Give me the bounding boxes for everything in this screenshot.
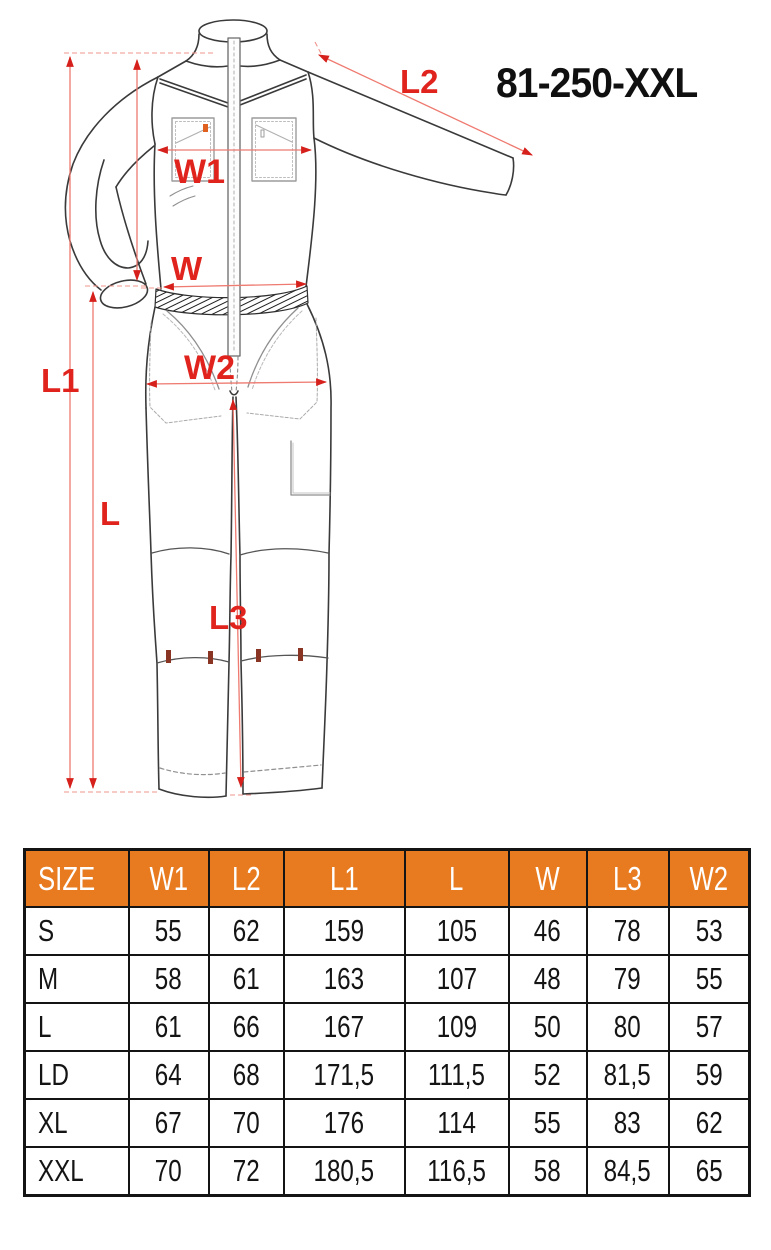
value-cell: 52 [509,1051,587,1099]
table-row: XL6770176114558362 [25,1099,750,1147]
value-cell: 70 [209,1099,284,1147]
table-row: M5861163107487955 [25,955,750,1003]
value-cell: 61 [129,1003,209,1051]
column-header-l: L [405,850,509,908]
cell-text: 68 [233,1057,260,1093]
cell-text: 55 [534,1105,561,1141]
cell-text: 81,5 [604,1057,651,1093]
value-cell: 176 [284,1099,405,1147]
cell-text: XL [38,1105,68,1141]
value-cell: 48 [509,955,587,1003]
cell-text: 53 [695,913,722,949]
value-cell: 84,5 [587,1147,669,1196]
cell-text: S [38,913,54,949]
cell-text: 111,5 [428,1057,485,1093]
value-cell: 80 [587,1003,669,1051]
column-header-w2: W2 [669,850,750,908]
value-cell: 55 [509,1099,587,1147]
cell-text: 57 [695,1009,722,1045]
value-cell: 72 [209,1147,284,1196]
column-header-label: W2 [689,860,728,898]
column-header-size: SIZE [25,850,129,908]
value-cell: 81,5 [587,1051,669,1099]
dimension-label-l3: L3 [209,599,248,636]
cell-text: 78 [614,913,641,949]
cell-text: 171,5 [314,1057,375,1093]
value-cell: 79 [587,955,669,1003]
column-header-l1: L1 [284,850,405,908]
value-cell: 78 [587,907,669,955]
cell-text: 58 [155,961,182,997]
cell-text: 167 [324,1009,364,1045]
table-row: LD6468171,5111,55281,559 [25,1051,750,1099]
cell-text: 48 [534,961,561,997]
column-header-w: W [509,850,587,908]
cell-text: LD [38,1057,69,1093]
sleeve-cuff [98,276,151,313]
left-sleeve [65,77,158,312]
cell-text: 52 [534,1057,561,1093]
dimension-label-w1: W1 [174,153,225,191]
value-cell: 55 [129,907,209,955]
value-cell: 66 [209,1003,284,1051]
value-cell: 83 [587,1099,669,1147]
value-cell: 163 [284,955,405,1003]
value-cell: 180,5 [284,1147,405,1196]
size-table-body: S5562159105467853M5861163107487955L61661… [25,907,750,1196]
cell-text: 114 [437,1105,476,1141]
value-cell: 114 [405,1099,509,1147]
size-cell: L [25,1003,129,1051]
dimension-label-l: L [100,495,120,532]
value-cell: 167 [284,1003,405,1051]
column-header-label: SIZE [38,860,95,898]
size-cell: M [25,955,129,1003]
cell-text: 159 [324,913,364,949]
column-header-l3: L3 [587,850,669,908]
dimension-label-w2: W2 [184,349,235,387]
column-header-label: L3 [613,860,642,898]
value-cell: 65 [669,1147,750,1196]
cargo-pocket [291,441,330,495]
cell-text: 80 [614,1009,641,1045]
cell-text: 107 [436,961,476,997]
cell-text: M [38,961,58,997]
column-header-w1: W1 [129,850,209,908]
front-zipper [228,38,240,392]
cell-text: L [38,1009,51,1045]
table-row: S5562159105467853 [25,907,750,955]
cell-text: 116,5 [427,1153,486,1189]
value-cell: 53 [669,907,750,955]
cell-text: 79 [614,961,641,997]
value-cell: 159 [284,907,405,955]
cell-text: 70 [155,1153,182,1189]
cell-text: 163 [324,961,364,997]
value-cell: 62 [209,907,284,955]
value-cell: 105 [405,907,509,955]
cell-text: 176 [324,1105,364,1141]
cell-text: 180,5 [314,1153,375,1189]
cell-text: 67 [155,1105,182,1141]
size-table: SIZE W1 L2 L1 L W L3 W2 S556215910546785… [23,848,751,1197]
value-cell: 57 [669,1003,750,1051]
cell-text: 58 [534,1153,561,1189]
value-cell: 64 [129,1051,209,1099]
cell-text: 70 [233,1105,260,1141]
column-header-label: W [535,860,559,898]
cell-text: 105 [436,913,476,949]
column-header-label: L2 [232,860,261,898]
cell-text: 46 [534,913,561,949]
size-chart-page: { "product": { "code": "81-250-XXL" }, "… [0,0,771,1250]
table-row: L6166167109508057 [25,1003,750,1051]
cell-text: 61 [233,961,260,997]
cell-text: 84,5 [604,1153,651,1189]
value-cell: 46 [509,907,587,955]
size-table-header: SIZE W1 L2 L1 L W L3 W2 [25,850,750,908]
dimension-label-l1: L1 [41,362,80,399]
cell-text: XXL [38,1153,84,1189]
value-cell: 171,5 [284,1051,405,1099]
column-header-label: L [449,860,463,898]
value-cell: 58 [129,955,209,1003]
column-header-label: L1 [330,860,359,898]
cell-text: 55 [155,913,182,949]
value-cell: 107 [405,955,509,1003]
value-cell: 67 [129,1099,209,1147]
cell-text: 109 [436,1009,476,1045]
elbow-patch [96,160,148,268]
size-cell: LD [25,1051,129,1099]
size-cell: S [25,907,129,955]
pocket-zip-pull-mark [203,124,208,132]
value-cell: 111,5 [405,1051,509,1099]
size-cell: XXL [25,1147,129,1196]
dimension-label-l2: L2 [400,63,439,100]
column-header-l2: L2 [209,850,284,908]
size-cell: XL [25,1099,129,1147]
coverall-technical-drawing: W1 L2 W W2 L1 L L3 [0,0,771,840]
value-cell: 50 [509,1003,587,1051]
cell-text: 50 [534,1009,561,1045]
value-cell: 55 [669,955,750,1003]
cell-text: 66 [233,1009,260,1045]
header-row: SIZE W1 L2 L1 L W L3 W2 [25,850,750,908]
legs-outline [146,304,331,797]
value-cell: 62 [669,1099,750,1147]
table-row: XXL7072180,5116,55884,565 [25,1147,750,1196]
value-cell: 116,5 [405,1147,509,1196]
cell-text: 65 [695,1153,722,1189]
dimension-label-w: W [171,250,203,287]
garment-outline [65,20,513,797]
value-cell: 68 [209,1051,284,1099]
value-cell: 59 [669,1051,750,1099]
cell-text: 59 [695,1057,722,1093]
cell-text: 62 [695,1105,722,1141]
cell-text: 55 [695,961,722,997]
cell-text: 83 [614,1105,641,1141]
cell-text: 61 [155,1009,182,1045]
cell-text: 72 [233,1153,260,1189]
value-cell: 109 [405,1003,509,1051]
cell-text: 64 [155,1057,182,1093]
value-cell: 58 [509,1147,587,1196]
cell-text: 62 [233,913,260,949]
column-header-label: W1 [149,860,188,898]
value-cell: 61 [209,955,284,1003]
value-cell: 70 [129,1147,209,1196]
